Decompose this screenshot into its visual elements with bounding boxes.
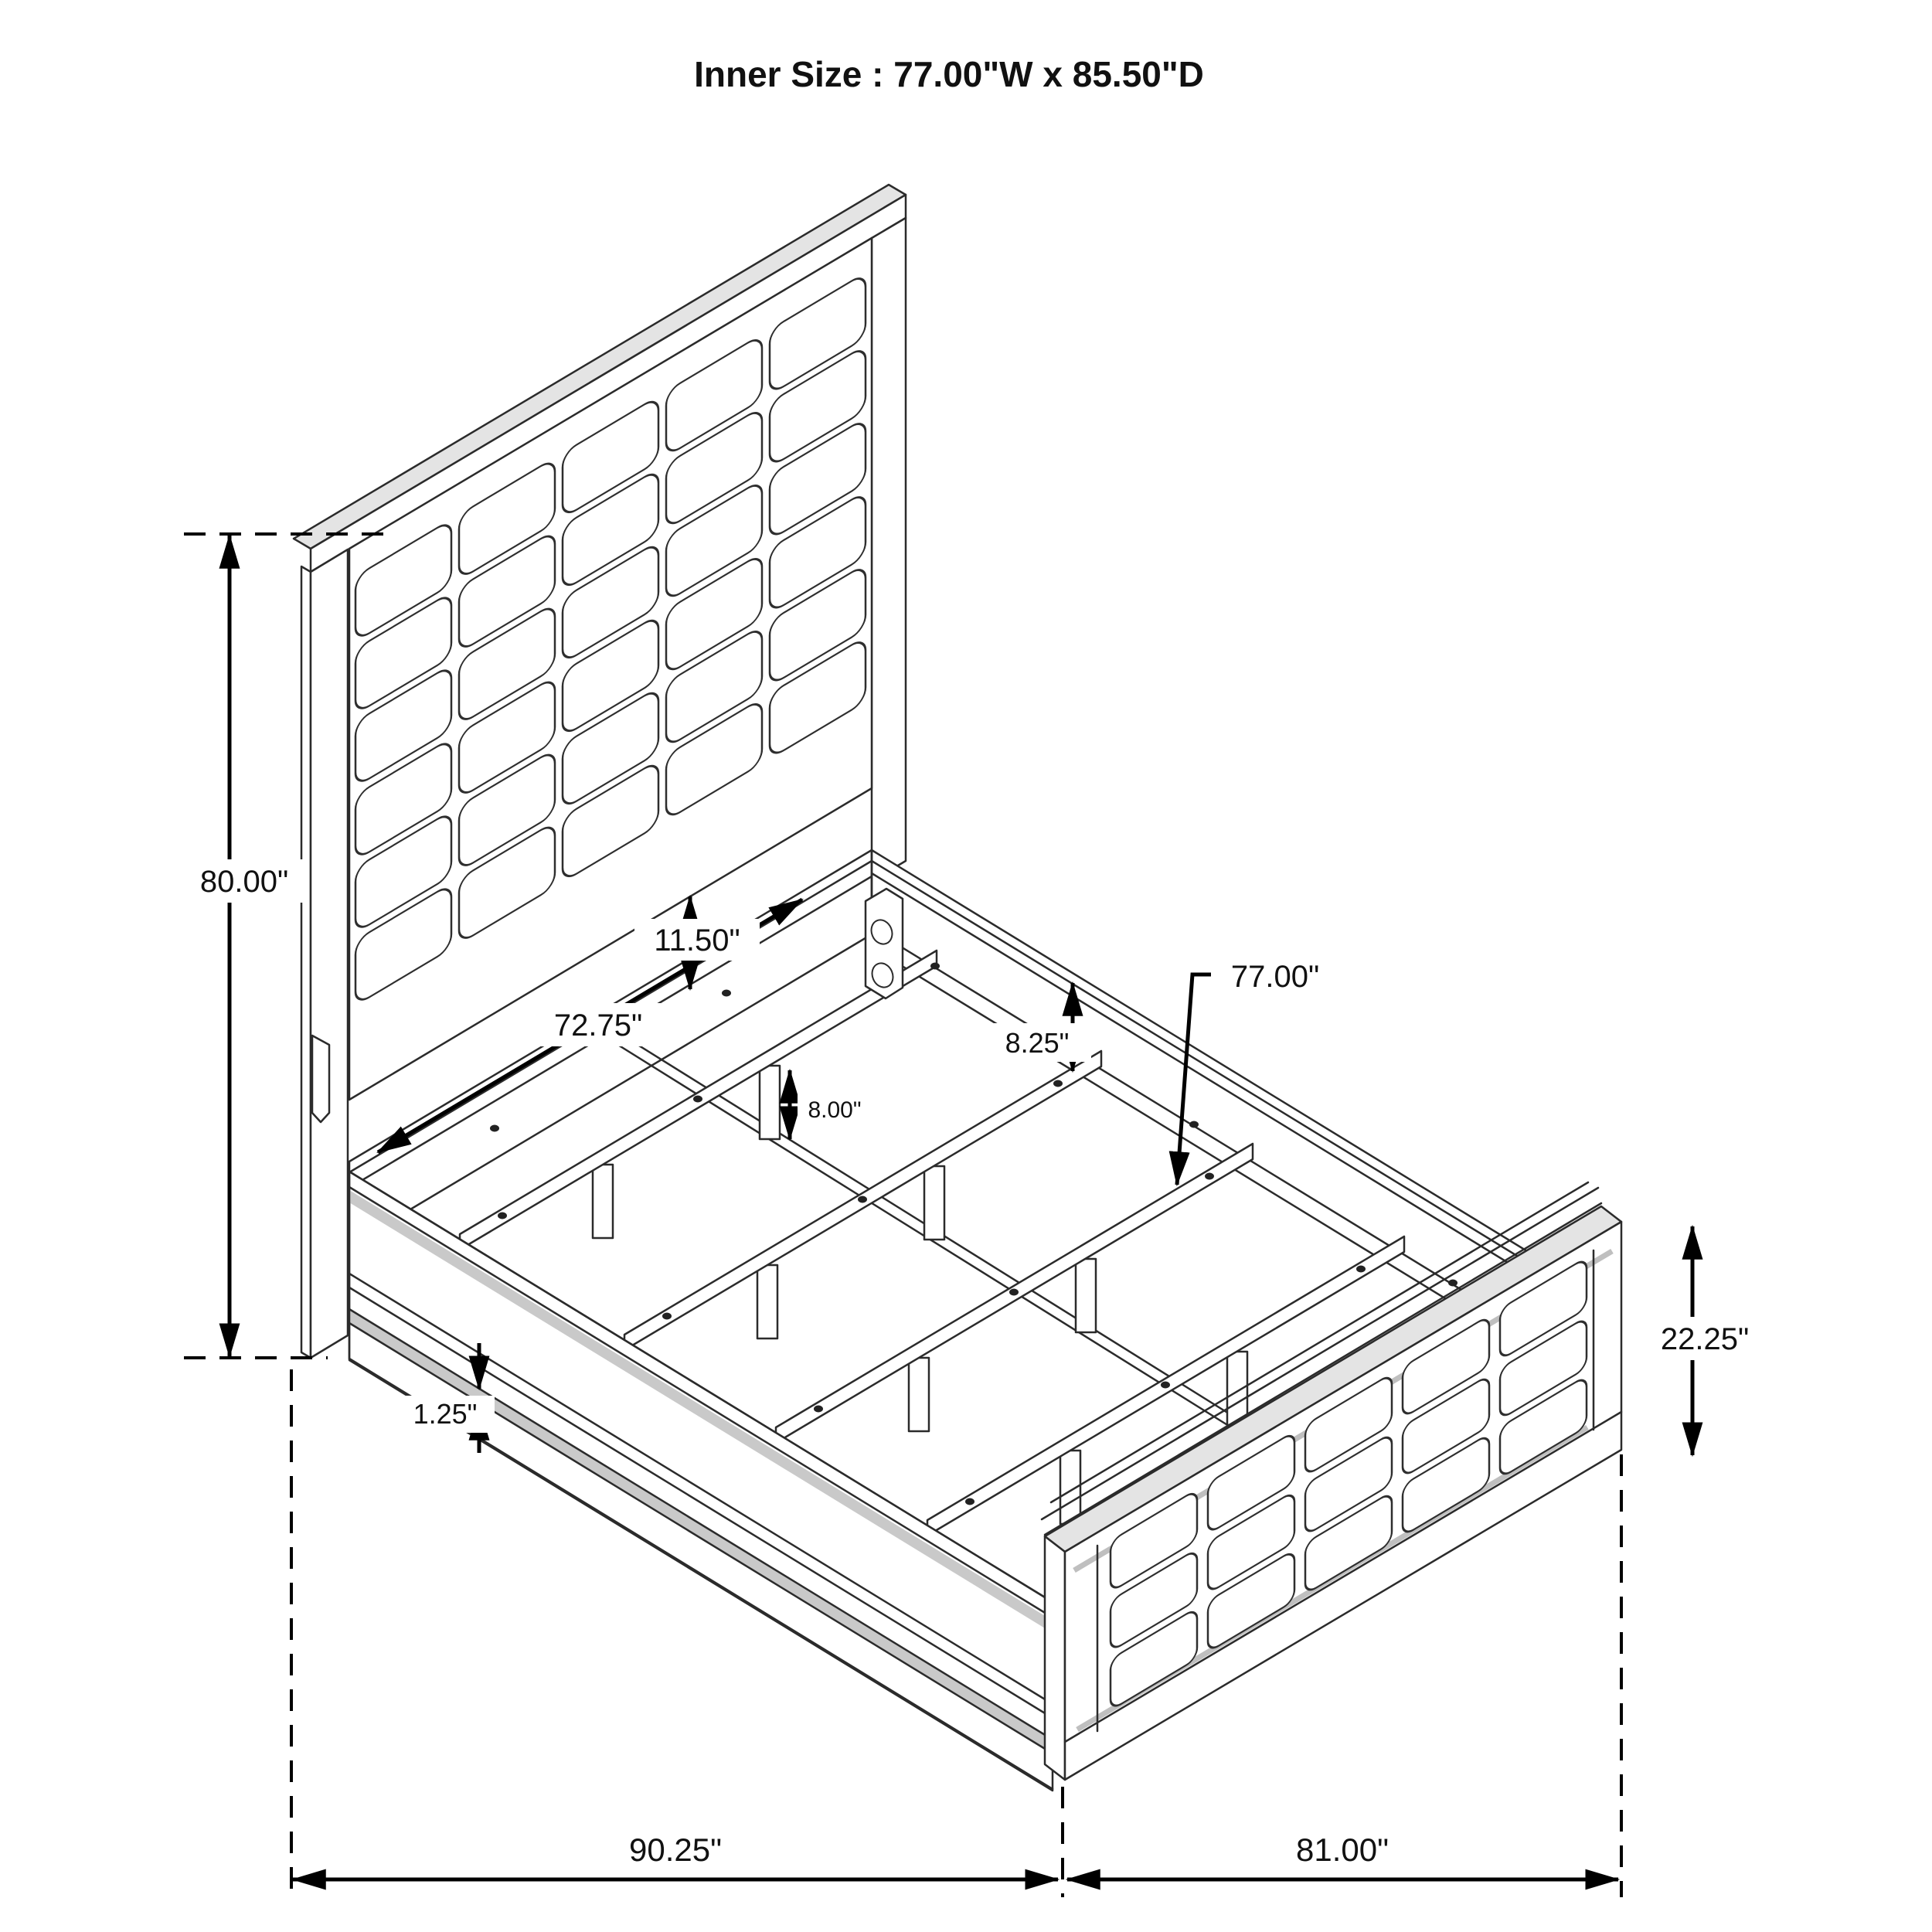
dim-support-leg-height-label: 8.00" (808, 1097, 861, 1123)
dim-slat-length-label: 77.00" (1231, 960, 1319, 994)
dim-overall-depth: 90.25" (293, 1832, 1058, 1879)
bed-dimension-diagram: 80.00" 72.75" 11.50" 8.00" 8.25" 77.00" (0, 0, 1932, 1932)
left-post-plate (312, 1036, 329, 1122)
footboard-end-cap (1045, 1536, 1065, 1780)
dim-footboard-height: 22.25" (1643, 1226, 1767, 1455)
dim-footboard-height-label: 22.25" (1661, 1322, 1749, 1356)
dim-rail-bottom-trim-label: 1.25" (413, 1398, 478, 1430)
dim-support-leg-height: 8.00" (790, 1070, 872, 1139)
rail-bracket (866, 889, 903, 998)
headboard-right-post (872, 218, 906, 881)
dim-overall-depth-label: 90.25" (629, 1832, 722, 1868)
headboard-left-post (311, 549, 348, 1358)
dim-headboard-clearance-label: 11.50" (654, 923, 740, 957)
left-side-rail (349, 1172, 1053, 1791)
diagram-canvas: 80.00" 72.75" 11.50" 8.00" 8.25" 77.00" (0, 0, 1932, 1932)
dim-overall-width: 81.00" (1067, 1832, 1618, 1879)
dim-headboard-height: 80.00" (185, 536, 303, 1356)
headboard-left-post-side (301, 566, 311, 1358)
page-title: Inner Size : 77.00"W x 85.50"D (694, 54, 1204, 94)
dim-overall-width-label: 81.00" (1296, 1832, 1389, 1868)
dim-headboard-height-label: 80.00" (200, 865, 288, 899)
dim-side-rail-height-label: 8.25" (1005, 1027, 1070, 1059)
dim-headboard-width-label: 72.75" (554, 1009, 642, 1043)
